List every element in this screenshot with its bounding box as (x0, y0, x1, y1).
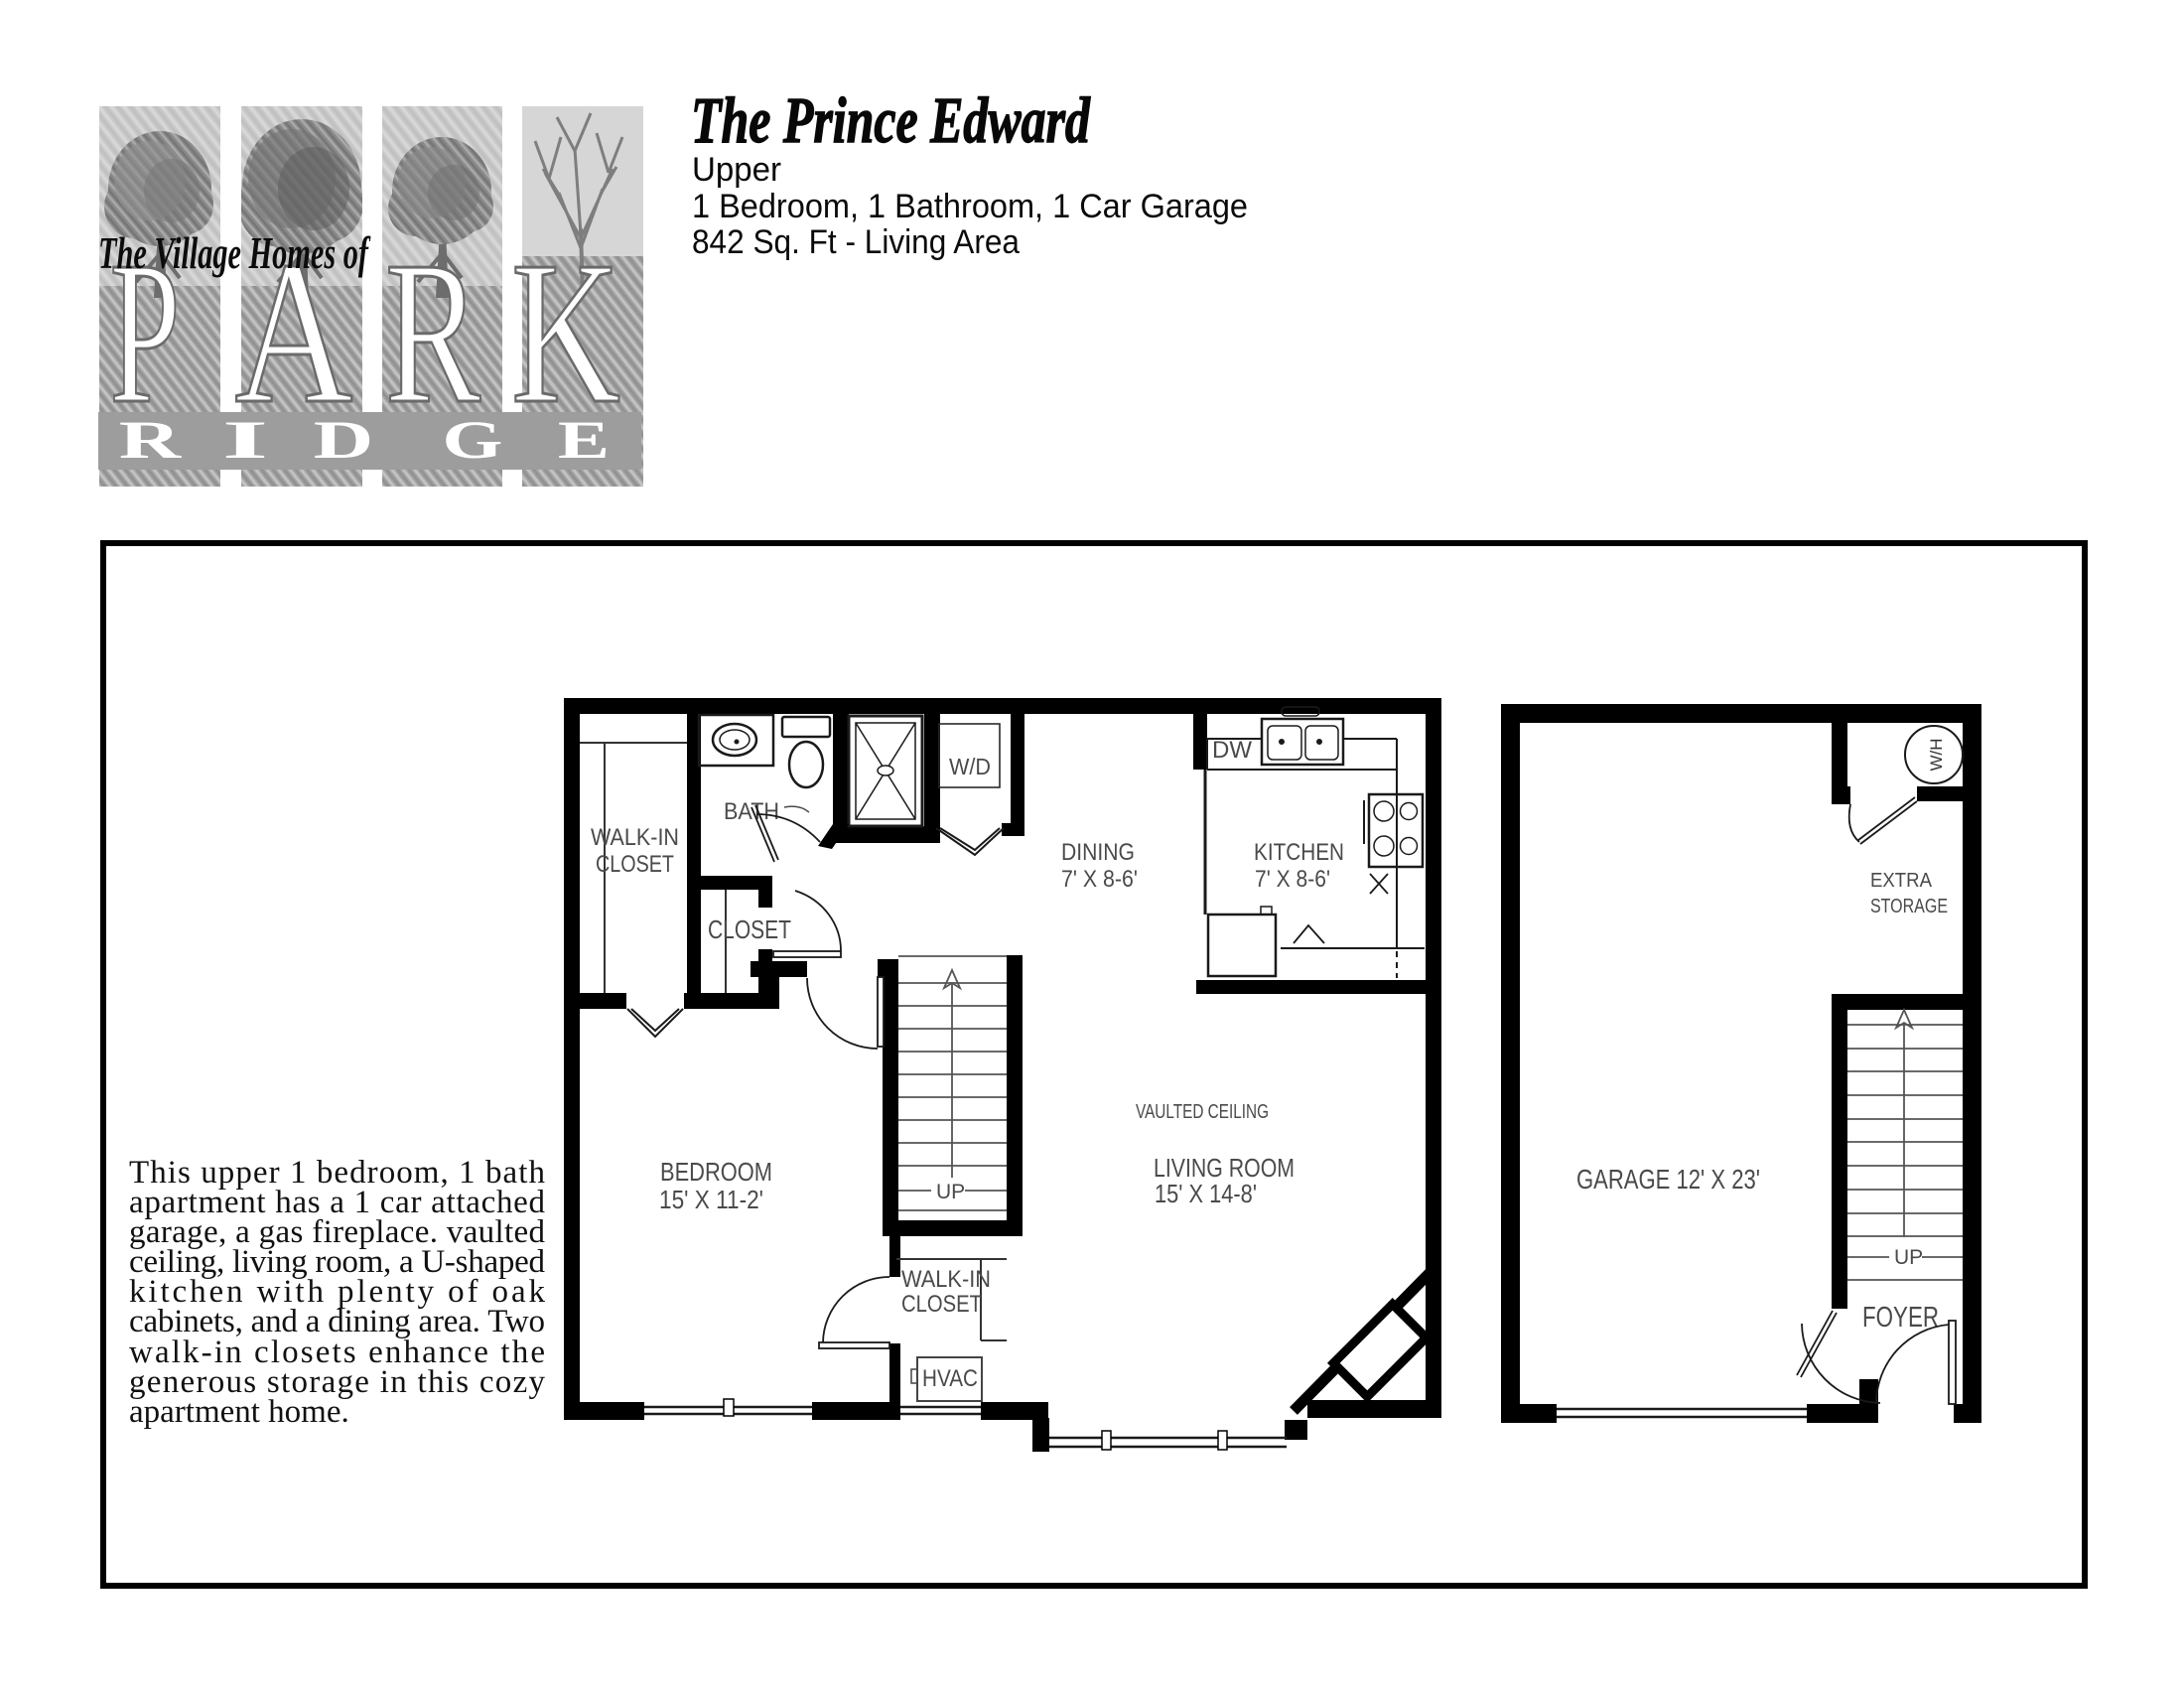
svg-text:I: I (222, 410, 268, 470)
svg-text:DW: DW (1212, 737, 1252, 764)
svg-text:WALK-IN: WALK-IN (591, 824, 679, 851)
svg-text:GARAGE 12' X 23': GARAGE 12' X 23' (1576, 1164, 1760, 1195)
svg-text:apartment home.: apartment home. (129, 1394, 349, 1430)
svg-text:G: G (443, 410, 503, 470)
svg-text:BATH: BATH (724, 798, 779, 825)
svg-text:842 Sq. Ft - Living Area: 842 Sq. Ft - Living Area (692, 223, 1020, 261)
svg-text:D: D (314, 410, 373, 470)
svg-text:The Prince Edward: The Prince Edward (691, 84, 1091, 157)
svg-text:DINING: DINING (1061, 839, 1135, 866)
svg-text:CLOSET: CLOSET (708, 914, 791, 944)
svg-text:Upper: Upper (692, 151, 781, 189)
svg-text:VAULTED CEILING: VAULTED CEILING (1136, 1101, 1269, 1123)
svg-text:CLOSET: CLOSET (901, 1291, 982, 1318)
svg-text:HVAC: HVAC (922, 1365, 978, 1392)
svg-text:15' X 11-2': 15' X 11-2' (659, 1185, 763, 1214)
svg-text:W/D: W/D (949, 754, 991, 779)
svg-text:7' X 8-6': 7' X 8-6' (1255, 866, 1330, 893)
svg-text:7' X 8-6': 7' X 8-6' (1061, 866, 1138, 893)
svg-text:STORAGE: STORAGE (1870, 896, 1948, 917)
svg-text:W/H: W/H (1927, 738, 1946, 771)
svg-text:R: R (119, 410, 183, 470)
svg-text:The Village Homes of: The Village Homes of (98, 227, 371, 278)
svg-text:CLOSET: CLOSET (596, 851, 674, 878)
svg-text:KITCHEN: KITCHEN (1254, 839, 1344, 866)
svg-text:WALK-IN: WALK-IN (901, 1266, 991, 1293)
svg-text:BEDROOM: BEDROOM (660, 1157, 772, 1187)
svg-text:E: E (558, 410, 610, 470)
svg-text:UP: UP (936, 1181, 965, 1203)
svg-text:UP: UP (1894, 1246, 1923, 1269)
svg-text:EXTRA: EXTRA (1870, 870, 1933, 892)
svg-text:1 Bedroom, 1 Bathroom, 1 Car G: 1 Bedroom, 1 Bathroom, 1 Car Garage (692, 188, 1248, 225)
svg-text:15' X 14-8': 15' X 14-8' (1155, 1179, 1257, 1208)
